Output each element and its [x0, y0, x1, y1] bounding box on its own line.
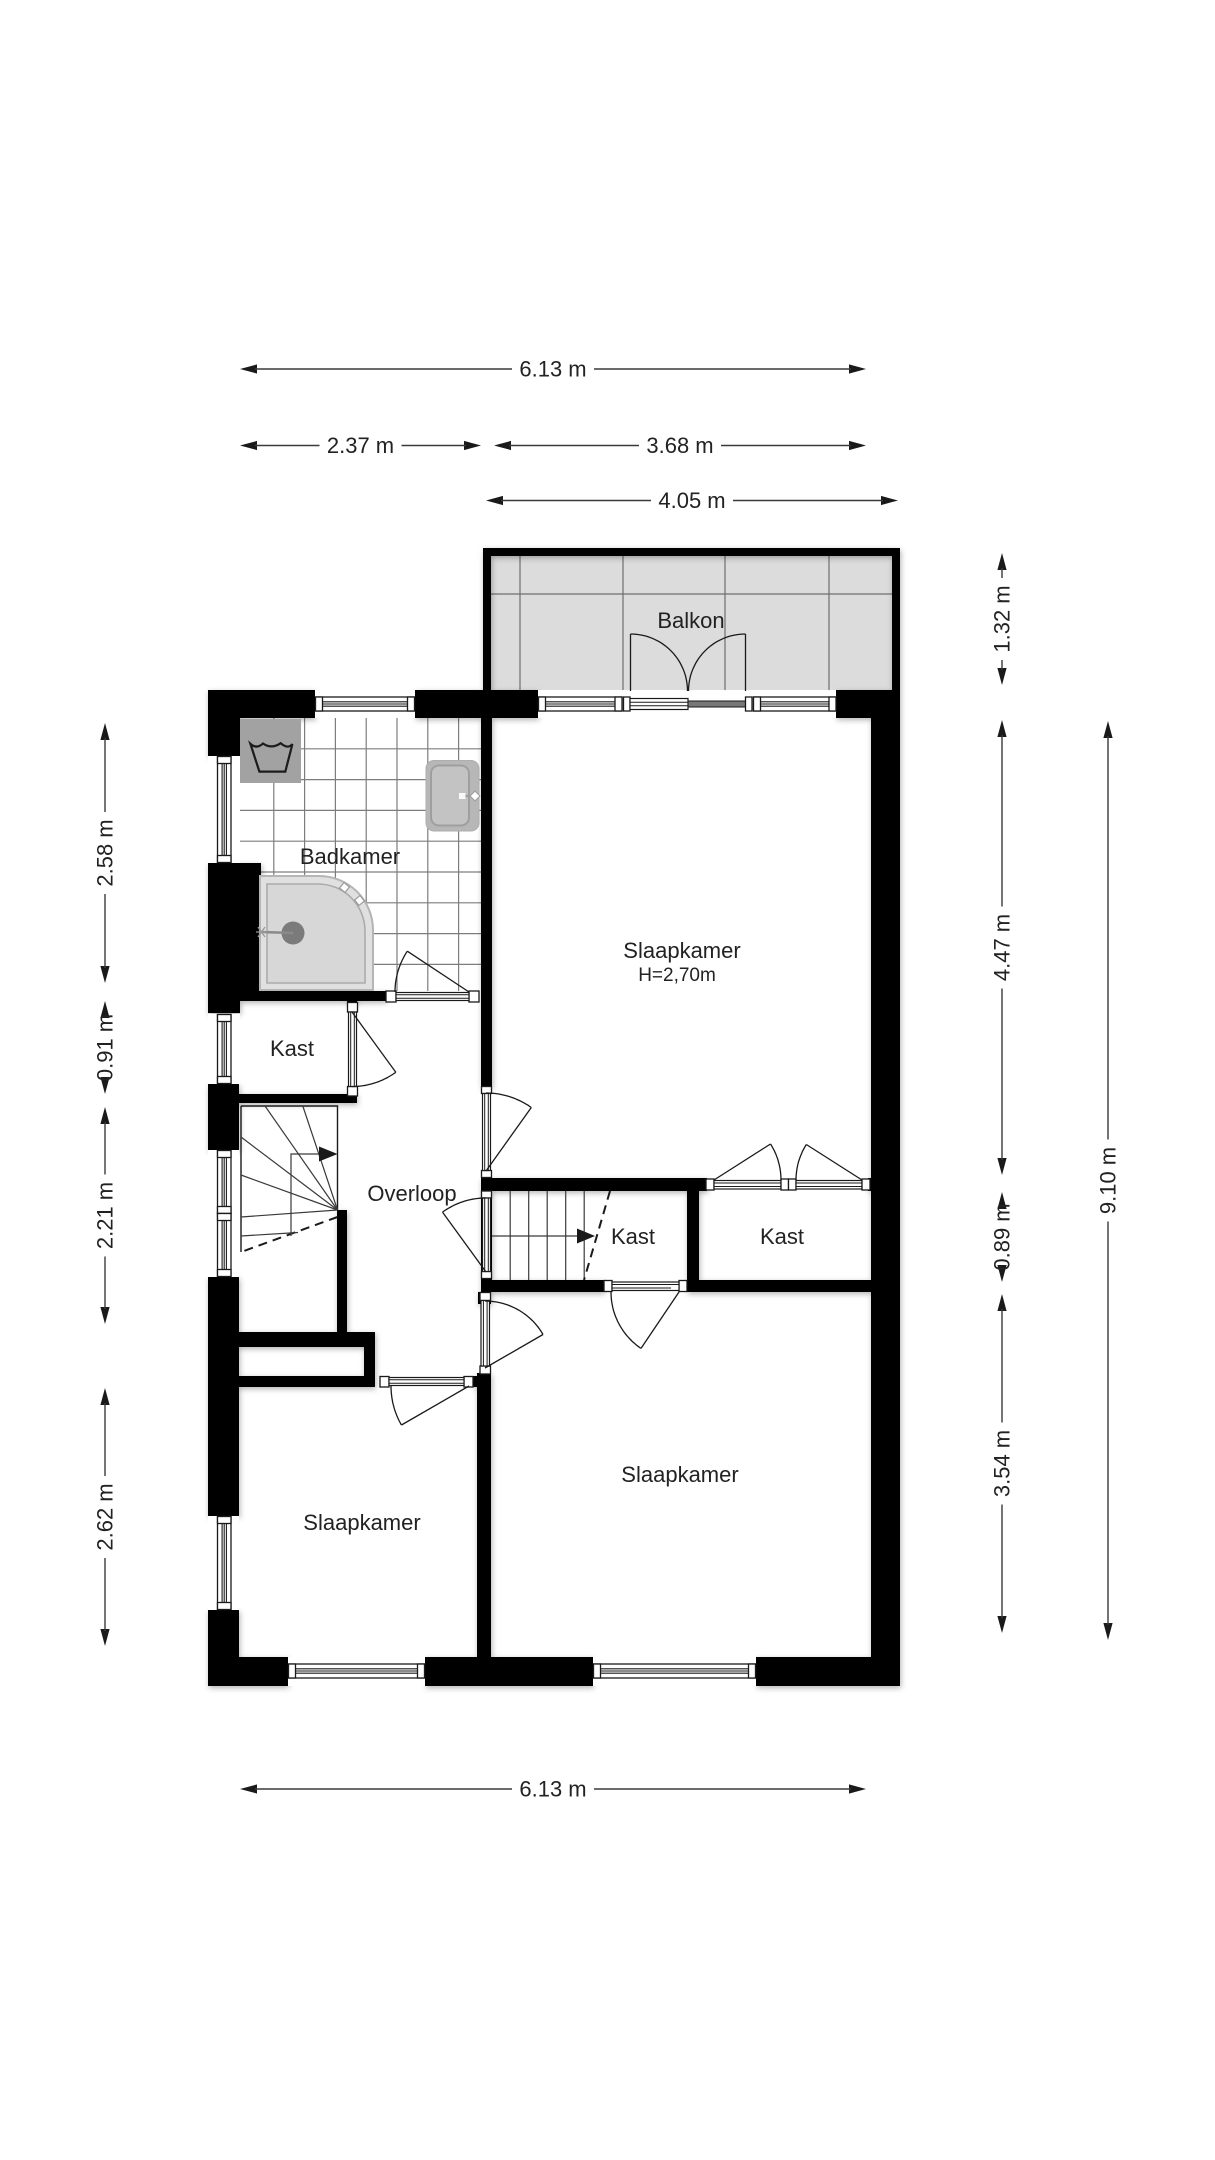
svg-text:9.10 m: 9.10 m: [1096, 1147, 1121, 1214]
svg-text:Kast: Kast: [611, 1224, 655, 1249]
svg-text:4.05 m: 4.05 m: [658, 488, 725, 513]
svg-text:0.91 m: 0.91 m: [93, 1014, 118, 1081]
svg-text:6.13 m: 6.13 m: [519, 357, 586, 382]
svg-text:6.13 m: 6.13 m: [519, 1777, 586, 1802]
svg-text:4.47 m: 4.47 m: [990, 914, 1015, 981]
svg-text:3.68 m: 3.68 m: [646, 433, 713, 458]
svg-text:0.89 m: 0.89 m: [990, 1203, 1015, 1270]
svg-text:H=2,70m: H=2,70m: [638, 965, 716, 986]
svg-text:2.58 m: 2.58 m: [93, 819, 118, 886]
svg-text:Badkamer: Badkamer: [300, 844, 400, 869]
svg-text:Slaapkamer: Slaapkamer: [623, 938, 740, 963]
svg-text:2.21 m: 2.21 m: [93, 1182, 118, 1249]
svg-text:Balkon: Balkon: [657, 608, 724, 633]
svg-text:1.32 m: 1.32 m: [990, 585, 1015, 652]
svg-text:2.62 m: 2.62 m: [93, 1483, 118, 1550]
svg-text:Slaapkamer: Slaapkamer: [621, 1462, 738, 1487]
svg-text:Slaapkamer: Slaapkamer: [303, 1510, 420, 1535]
svg-text:Kast: Kast: [270, 1036, 314, 1061]
svg-text:Kast: Kast: [760, 1224, 804, 1249]
svg-text:2.37 m: 2.37 m: [327, 433, 394, 458]
svg-text:Overloop: Overloop: [367, 1181, 456, 1206]
svg-text:3.54 m: 3.54 m: [990, 1430, 1015, 1497]
